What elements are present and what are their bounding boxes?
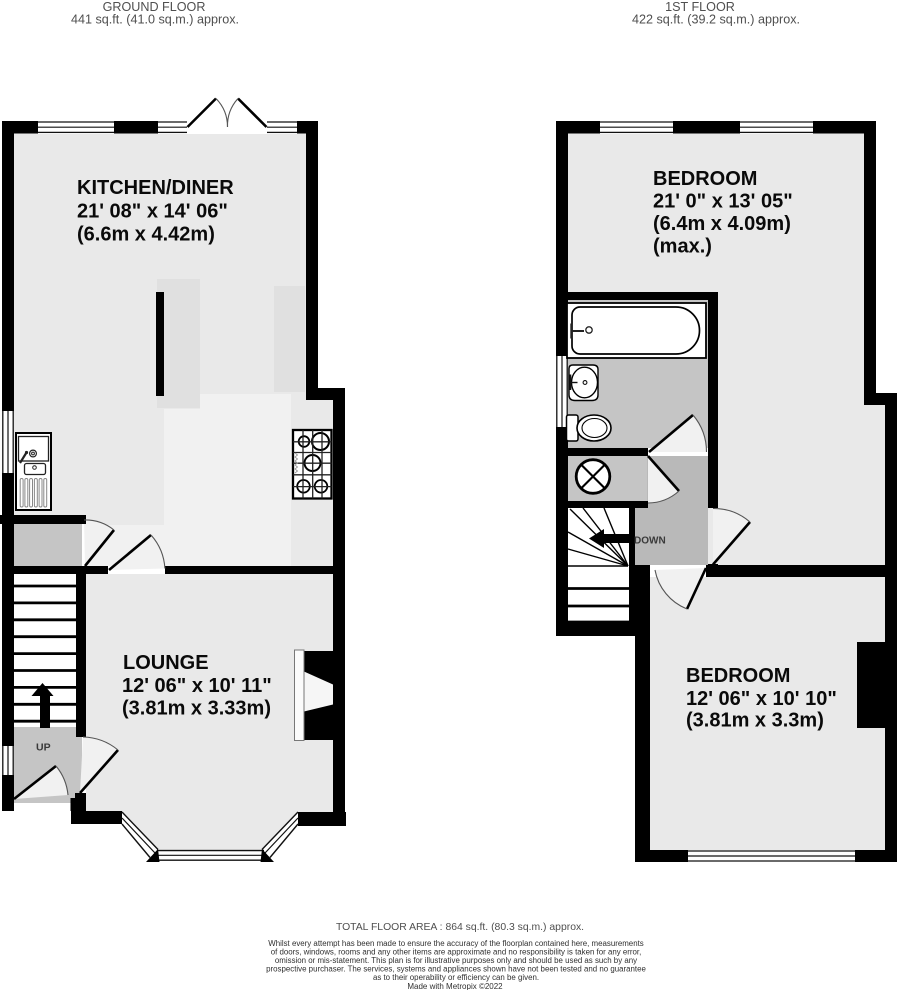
svg-text:Made with Metropix ©2022: Made with Metropix ©2022	[407, 982, 503, 990]
svg-text:12' 06" x 10' 11": 12' 06" x 10' 11"	[122, 675, 272, 697]
svg-text:BEDROOM: BEDROOM	[686, 665, 790, 687]
svg-text:UP: UP	[36, 742, 51, 754]
svg-text:(3.81m x 3.33m): (3.81m x 3.33m)	[122, 698, 271, 720]
svg-text:(3.81m x 3.3m): (3.81m x 3.3m)	[686, 710, 824, 732]
svg-text:(6.6m x 4.42m): (6.6m x 4.42m)	[77, 224, 215, 246]
svg-text:TOTAL FLOOR AREA : 864 sq.ft.: TOTAL FLOOR AREA : 864 sq.ft. (80.3 sq.m…	[336, 922, 584, 933]
svg-text:21' 08" x 14' 06": 21' 08" x 14' 06"	[77, 201, 228, 223]
svg-text:BEDROOM: BEDROOM	[653, 168, 757, 190]
svg-text:441 sq.ft. (41.0 sq.m.) approx: 441 sq.ft. (41.0 sq.m.) approx.	[71, 13, 239, 27]
svg-text:as to their operability or eff: as to their operability or efficiency ca…	[373, 973, 539, 982]
svg-text:(6.4m x 4.09m): (6.4m x 4.09m)	[653, 213, 791, 235]
svg-text:12' 06" x 10' 10": 12' 06" x 10' 10"	[686, 688, 837, 710]
svg-text:21' 0" x 13' 05": 21' 0" x 13' 05"	[653, 191, 793, 213]
svg-text:422 sq.ft. (39.2 sq.m.) approx: 422 sq.ft. (39.2 sq.m.) approx.	[632, 13, 800, 27]
svg-text:LOUNGE: LOUNGE	[123, 652, 209, 674]
svg-text:(max.): (max.)	[653, 236, 712, 258]
svg-text:KITCHEN/DINER: KITCHEN/DINER	[77, 177, 234, 199]
svg-text:DOWN: DOWN	[634, 536, 666, 547]
